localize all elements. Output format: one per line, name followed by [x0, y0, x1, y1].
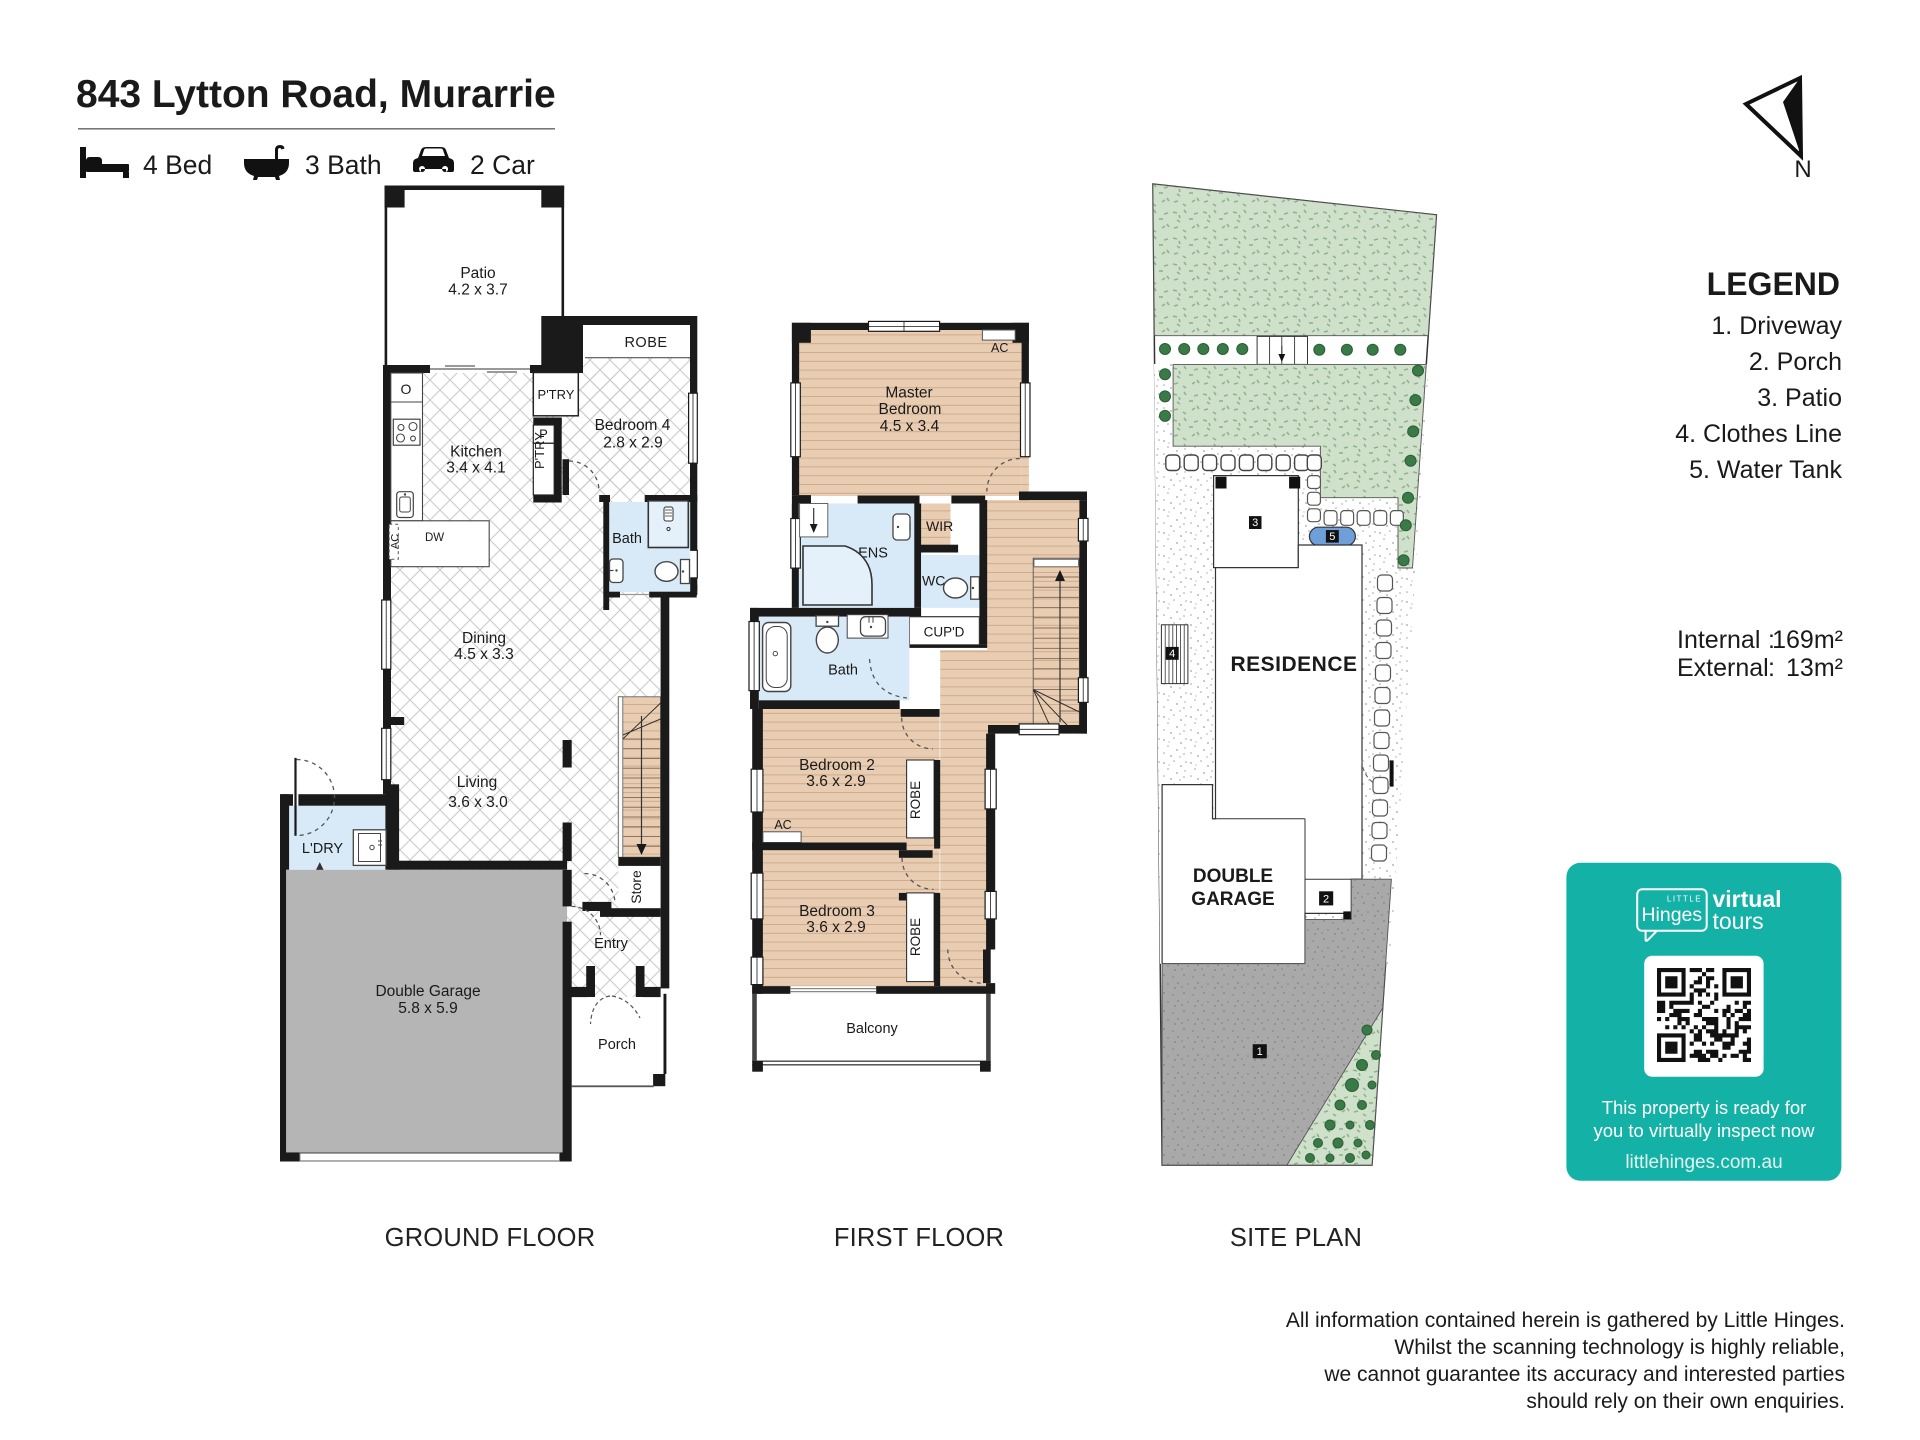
svg-text:This property is ready for: This property is ready for [1602, 1097, 1807, 1118]
svg-text:Bedroom 4: Bedroom 4 [595, 417, 671, 434]
svg-text:CUP'D: CUP'D [924, 625, 965, 640]
svg-text:LITTLE: LITTLE [1667, 895, 1702, 904]
svg-text:169m²: 169m² [1772, 626, 1843, 654]
svg-text:1. Driveway: 1. Driveway [1711, 312, 1842, 340]
svg-text:Double Garage: Double Garage [375, 983, 480, 1000]
svg-text:L'DRY: L'DRY [302, 841, 344, 857]
svg-text:Kitchen: Kitchen [450, 444, 502, 461]
svg-text:Entry: Entry [594, 936, 629, 952]
svg-text:Bedroom 2: Bedroom 2 [799, 757, 875, 774]
svg-text:5: 5 [1329, 531, 1335, 543]
svg-text:All information contained here: All information contained herein is gath… [1286, 1309, 1845, 1332]
svg-text:3.4 x 4.1: 3.4 x 4.1 [446, 460, 505, 477]
svg-text:N: N [1794, 156, 1811, 183]
svg-text:5.8 x 5.9: 5.8 x 5.9 [398, 1000, 457, 1017]
svg-text:4.2 x 3.7: 4.2 x 3.7 [448, 282, 507, 299]
svg-text:Dining: Dining [462, 630, 506, 647]
svg-text:4 Bed: 4 Bed [143, 150, 212, 180]
svg-text:DW: DW [425, 532, 444, 544]
svg-text:3: 3 [1252, 517, 1258, 529]
svg-text:ROBE: ROBE [908, 781, 923, 819]
svg-text:Store: Store [628, 870, 644, 904]
svg-text:should rely on their own enqui: should rely on their own enquiries. [1526, 1390, 1845, 1413]
svg-text:tours: tours [1713, 908, 1764, 934]
svg-text:GARAGE: GARAGE [1191, 889, 1274, 910]
svg-text:Bath: Bath [612, 531, 642, 547]
svg-text:2. Porch: 2. Porch [1749, 348, 1842, 376]
svg-text:13m²: 13m² [1786, 654, 1843, 682]
svg-text:Porch: Porch [598, 1037, 636, 1053]
svg-text:we cannot guarantee its accura: we cannot guarantee its accuracy and int… [1323, 1363, 1845, 1386]
svg-text:GROUND FLOOR: GROUND FLOOR [385, 1224, 596, 1252]
svg-text:3.6 x 2.9: 3.6 x 2.9 [806, 919, 865, 936]
svg-text:3.6 x 3.0: 3.6 x 3.0 [448, 794, 508, 811]
svg-text:1: 1 [1257, 1046, 1263, 1058]
svg-text:AC: AC [774, 818, 791, 832]
svg-text:Bedroom: Bedroom [879, 401, 942, 418]
svg-text:Internal: Internal [1677, 626, 1760, 654]
svg-text:ROBE: ROBE [908, 918, 923, 956]
svg-text:P'TRY: P'TRY [538, 387, 575, 402]
svg-text:P'TRY: P'TRY [532, 432, 547, 469]
svg-text:WC: WC [922, 573, 945, 589]
svg-text:Whilst the scanning technology: Whilst the scanning technology is highly… [1394, 1336, 1845, 1359]
svg-text:2 Car: 2 Car [470, 150, 535, 180]
svg-text:you to virtually inspect now: you to virtually inspect now [1593, 1120, 1815, 1141]
svg-text:4: 4 [1169, 648, 1175, 660]
svg-text:WIR: WIR [926, 518, 953, 534]
svg-text:SITE PLAN: SITE PLAN [1230, 1224, 1362, 1252]
svg-text:Living: Living [457, 774, 498, 791]
svg-text:4.5 x 3.3: 4.5 x 3.3 [454, 646, 513, 663]
svg-text::: : [1768, 654, 1775, 682]
svg-text:3. Patio: 3. Patio [1757, 384, 1842, 412]
svg-text:Hinges: Hinges [1641, 904, 1702, 926]
svg-text:AC: AC [390, 534, 402, 549]
svg-text:LEGEND: LEGEND [1707, 266, 1840, 302]
svg-text:4.5 x 3.4: 4.5 x 3.4 [880, 418, 940, 435]
svg-text:RESIDENCE: RESIDENCE [1230, 653, 1357, 676]
svg-text:Balcony: Balcony [846, 1021, 898, 1037]
svg-text:DOUBLE: DOUBLE [1193, 866, 1273, 887]
svg-text:AC: AC [991, 341, 1008, 355]
svg-text:843 Lytton Road, Murarrie: 843 Lytton Road, Murarrie [76, 73, 556, 116]
svg-text:4. Clothes Line: 4. Clothes Line [1675, 420, 1842, 448]
svg-text:FIRST FLOOR: FIRST FLOOR [834, 1224, 1004, 1252]
svg-text:3 Bath: 3 Bath [305, 150, 382, 180]
svg-text:Master: Master [885, 385, 932, 402]
svg-text:O: O [401, 381, 412, 397]
svg-text:Bedroom 3: Bedroom 3 [799, 903, 875, 920]
svg-text:Bath: Bath [828, 663, 858, 679]
svg-text:Patio: Patio [460, 265, 495, 282]
svg-text:External: External [1677, 654, 1769, 682]
svg-text:3.6 x 2.9: 3.6 x 2.9 [806, 773, 865, 790]
svg-text:2: 2 [1323, 893, 1329, 905]
svg-text:ROBE: ROBE [624, 335, 667, 351]
svg-text:5. Water Tank: 5. Water Tank [1689, 456, 1842, 484]
svg-text:littlehinges.com.au: littlehinges.com.au [1625, 1152, 1782, 1173]
svg-text:2.8 x 2.9: 2.8 x 2.9 [603, 435, 662, 452]
